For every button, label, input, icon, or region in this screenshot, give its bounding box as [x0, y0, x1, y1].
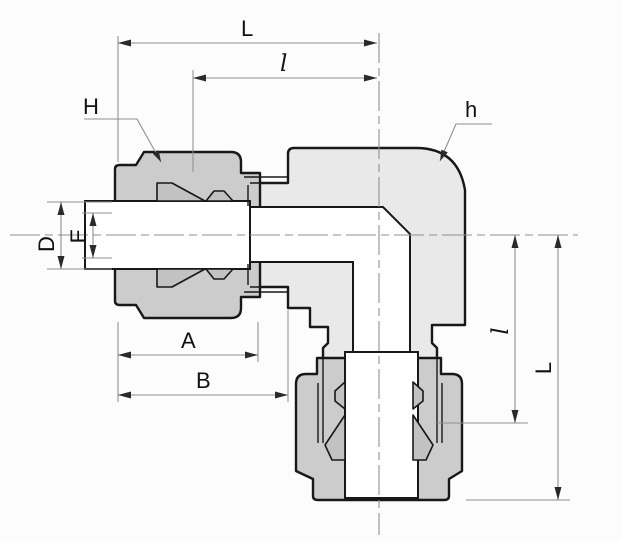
dim-label-h: h — [465, 97, 477, 122]
dim-label-l-right: l — [488, 327, 514, 334]
dim-label-A: A — [181, 328, 196, 353]
dim-B: B — [118, 368, 288, 399]
dim-label-D: D — [34, 236, 59, 252]
dim-label-L-right: L — [531, 362, 556, 374]
dim-L-right: L — [531, 235, 562, 500]
dim-label-E: E — [66, 229, 91, 244]
dim-h-leader: h — [440, 97, 492, 161]
technical-drawing-page: L l H h D E A — [0, 0, 622, 541]
dim-l-right: l — [488, 235, 519, 423]
dim-label-B: B — [196, 368, 211, 393]
dim-A: A — [118, 328, 258, 359]
dim-L-top: L — [118, 16, 377, 47]
fitting-elbow-drawing: L l H h D E A — [0, 0, 622, 541]
dim-label-L-top: L — [241, 16, 253, 41]
bottom-tube — [345, 352, 418, 498]
dim-label-l-top: l — [280, 51, 287, 77]
dim-l-top: l — [193, 51, 377, 82]
dim-label-H: H — [83, 94, 99, 119]
